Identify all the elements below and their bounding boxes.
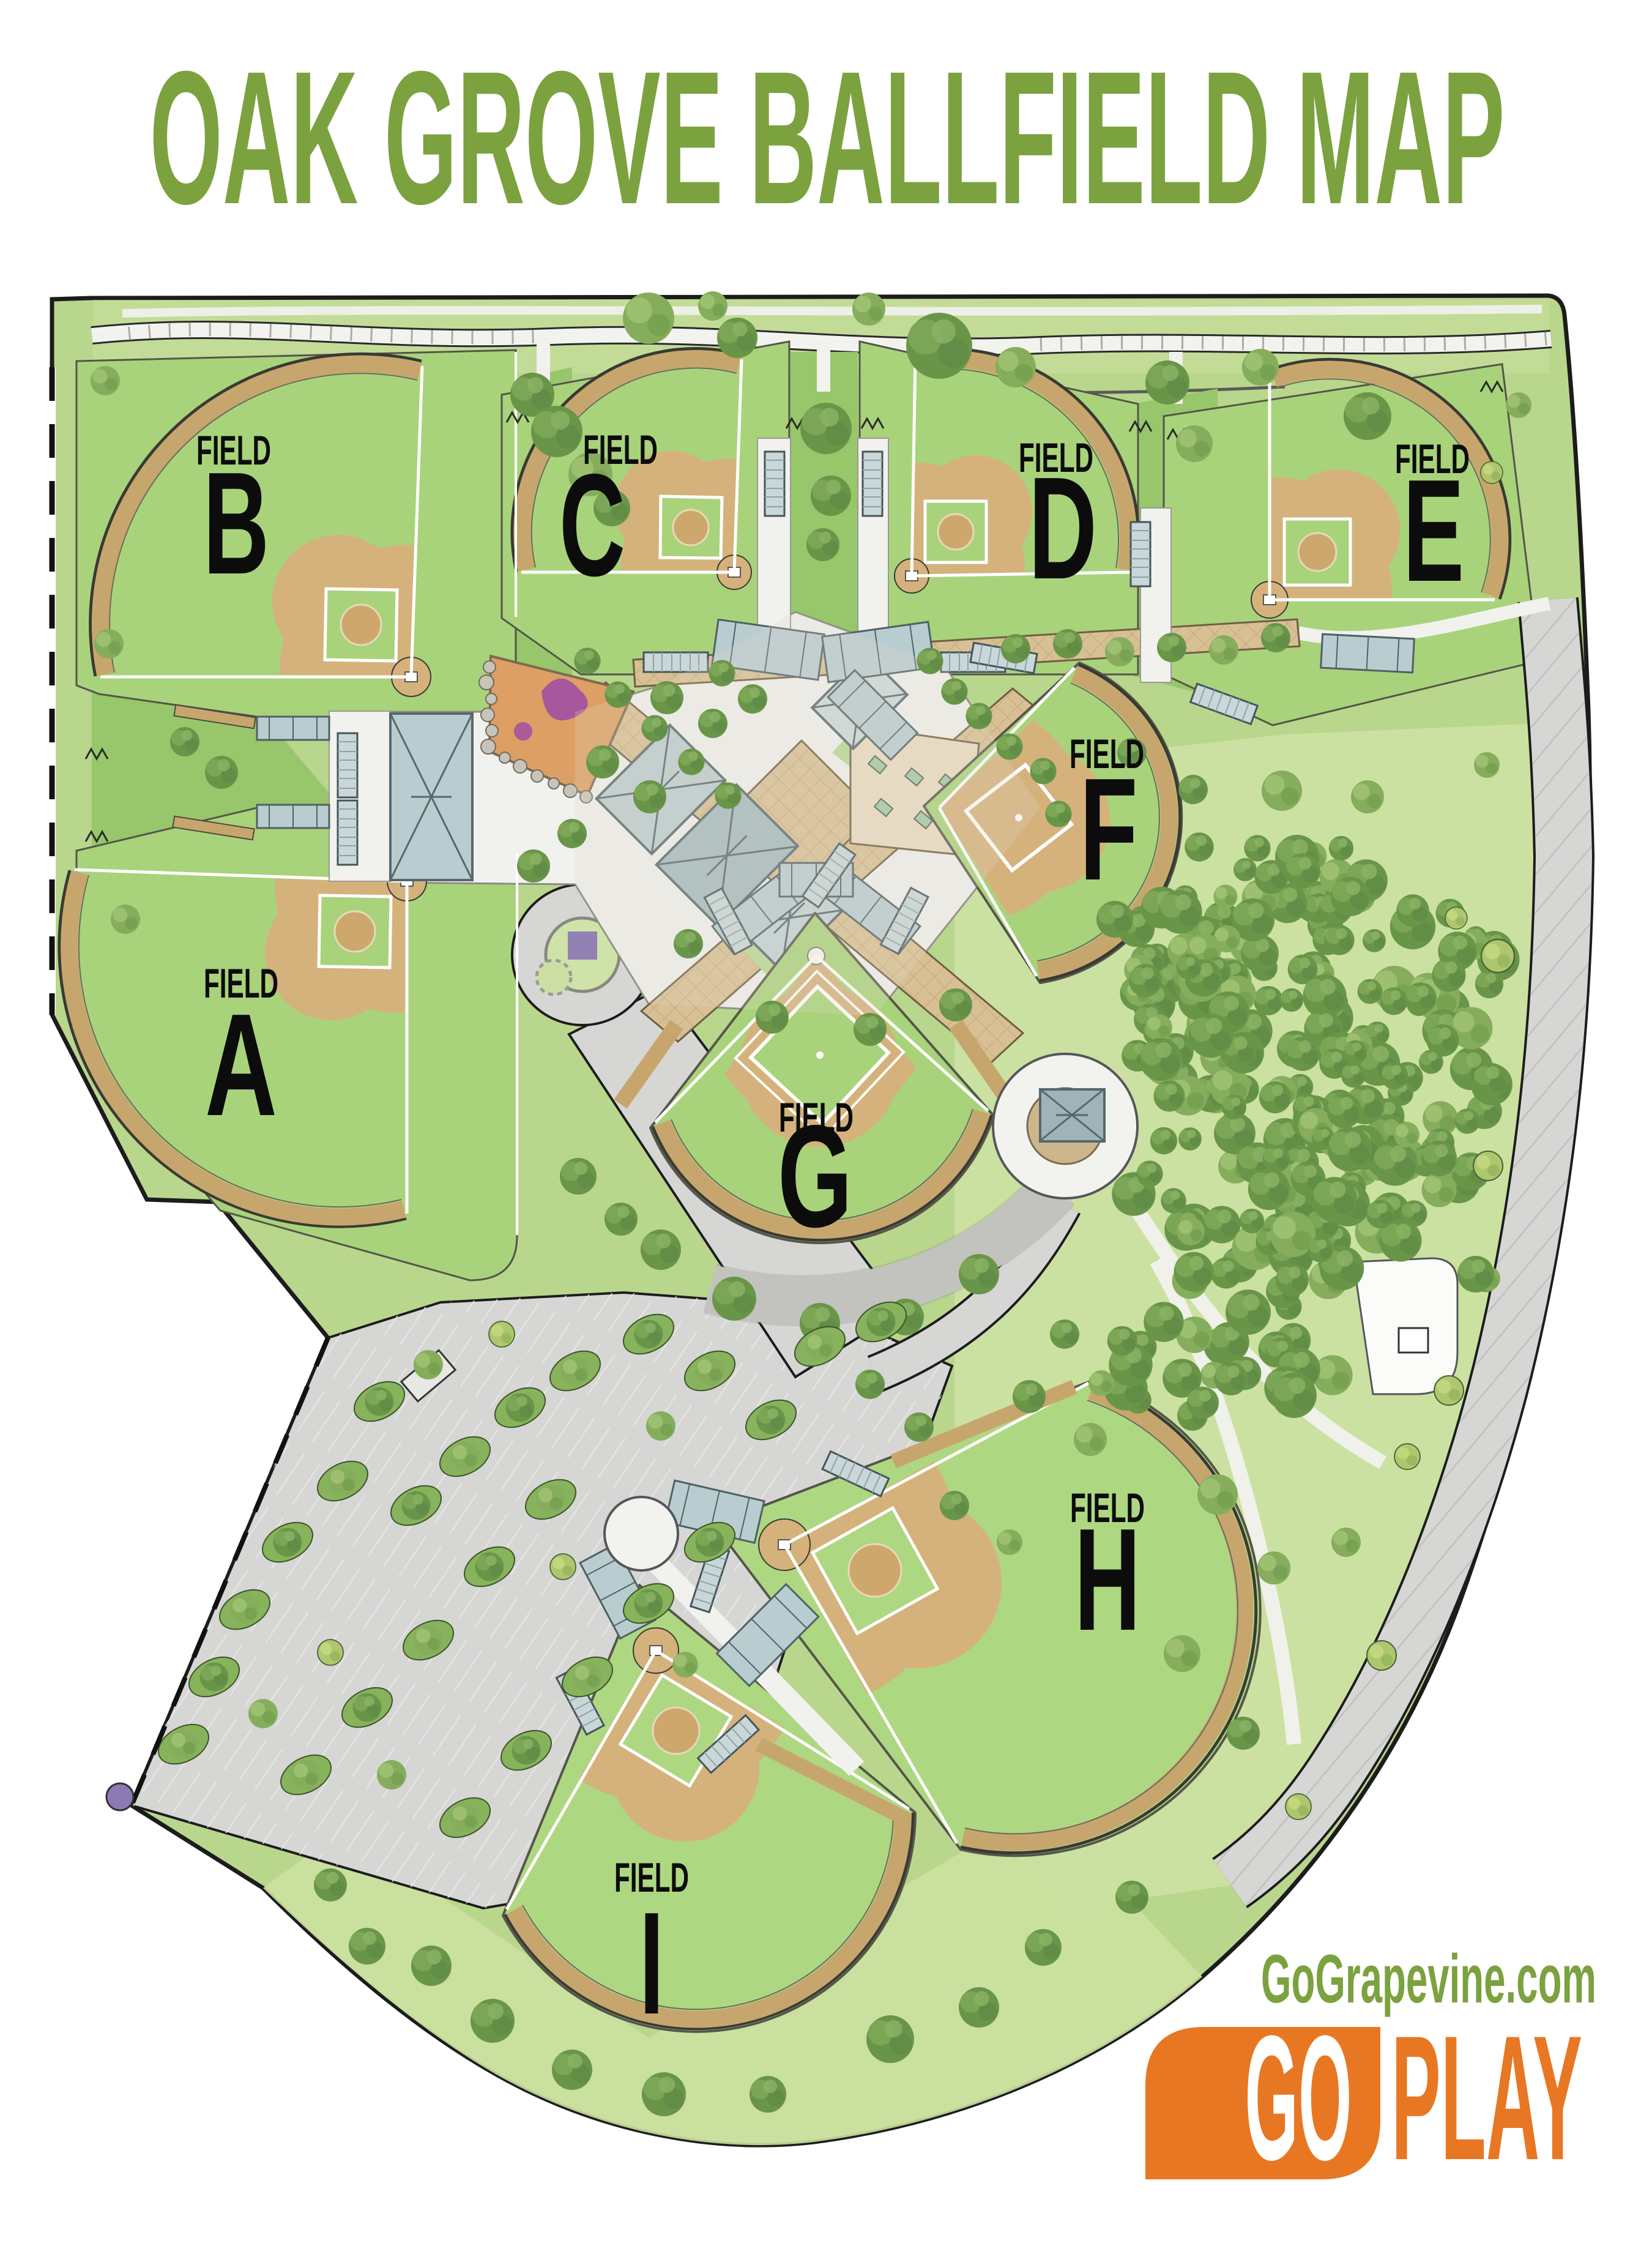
svg-text:OAK GROVE BALLFIELD MAP: OAK GROVE BALLFIELD MAP xyxy=(150,31,1505,244)
svg-text:I: I xyxy=(639,1883,664,2045)
svg-text:A: A xyxy=(205,984,277,1146)
svg-text:G: G xyxy=(778,1095,852,1258)
svg-text:D: D xyxy=(1029,447,1097,610)
svg-text:B: B xyxy=(203,442,269,605)
svg-text:GO: GO xyxy=(1245,1999,1352,2197)
svg-text:PLAY: PLAY xyxy=(1391,1999,1582,2197)
svg-text:E: E xyxy=(1403,450,1464,612)
svg-text:C: C xyxy=(559,444,625,606)
svg-text:F: F xyxy=(1080,748,1138,911)
svg-text:H: H xyxy=(1074,1499,1140,1661)
